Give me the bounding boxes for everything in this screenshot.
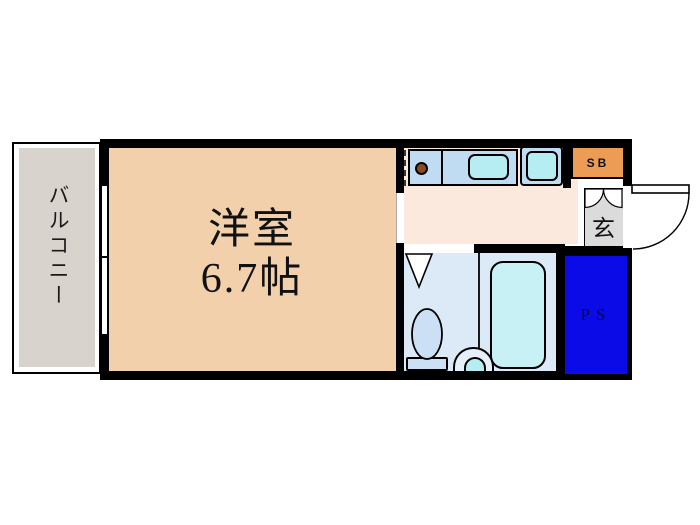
wall-left-lower bbox=[100, 334, 109, 380]
kitchen-sink bbox=[468, 154, 509, 180]
balcony-label: バルコニー bbox=[43, 184, 73, 344]
shoe-box: SB bbox=[571, 146, 625, 179]
pipe-space: PS bbox=[565, 256, 627, 374]
wall-left-upper bbox=[100, 139, 109, 186]
bathtub bbox=[490, 261, 546, 369]
window-meeting-rail bbox=[102, 256, 107, 258]
main-room-label: 洋室 bbox=[108, 206, 396, 255]
shoe-box-label: SB bbox=[587, 156, 610, 170]
gas-burner-icon bbox=[415, 162, 428, 175]
counter-divider bbox=[441, 151, 443, 184]
entrance-door-leaf bbox=[632, 185, 689, 193]
main-room-size: 6.7帖 bbox=[108, 255, 396, 304]
wall-room-bath bbox=[396, 243, 404, 380]
entrance-label: 玄 bbox=[584, 208, 623, 244]
entrance-door-opening bbox=[623, 186, 632, 248]
wall-bath-ps bbox=[556, 244, 565, 380]
wall-washer-sb-stub bbox=[563, 139, 571, 188]
wall-bottom bbox=[100, 371, 632, 380]
main-room-label-block: 洋室 6.7帖 bbox=[108, 206, 396, 304]
washing-machine-pan bbox=[526, 151, 558, 181]
entrance-door-swing-arc bbox=[633, 193, 689, 249]
bathroom-doorway bbox=[404, 244, 474, 253]
toilet-tank bbox=[406, 357, 448, 371]
wall-entrance-ps bbox=[556, 246, 632, 256]
counter-dashed-edge bbox=[404, 150, 406, 186]
room-kitchen-doorway bbox=[396, 193, 404, 243]
pipe-space-label: PS bbox=[581, 305, 612, 325]
wall-room-kitchen-upper bbox=[396, 139, 404, 193]
floor-plan: バルコニー SB 玄 PS 洋室 6.7帖 bbox=[0, 0, 700, 525]
